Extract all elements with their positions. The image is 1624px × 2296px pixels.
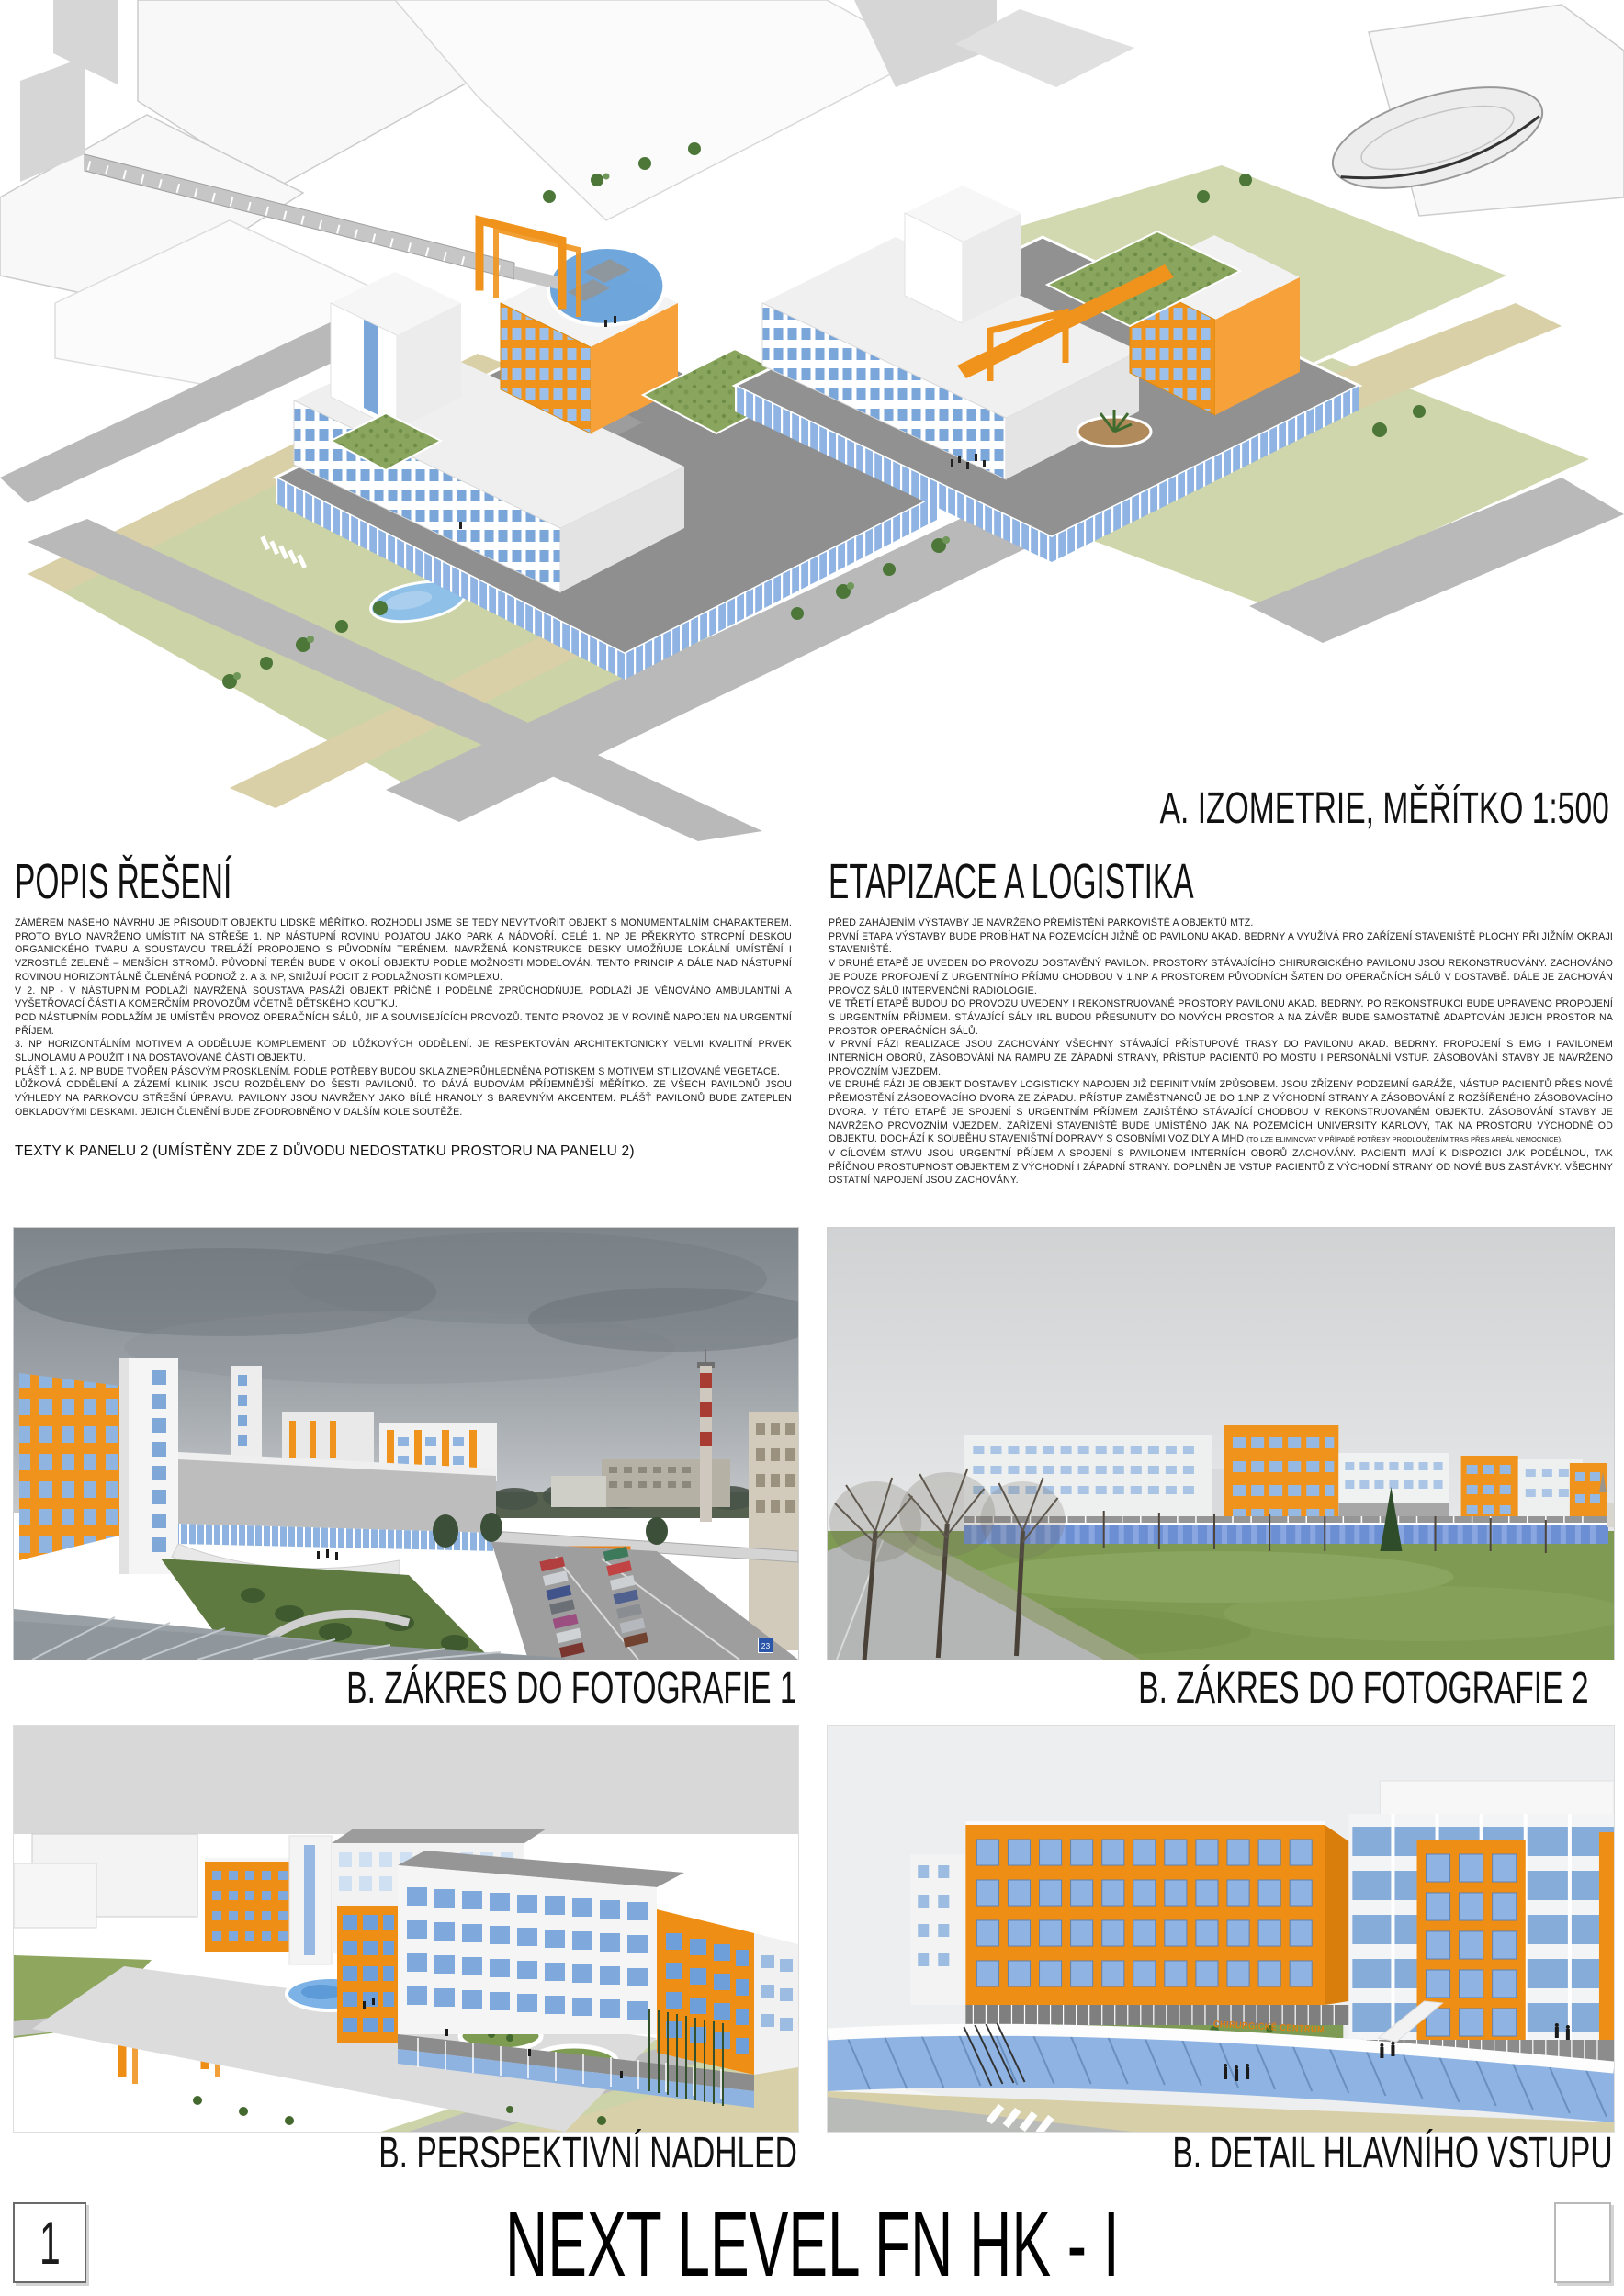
paragraph: POD NÁSTUPNÍM PODLAŽÍM JE UMÍSTĚN PROVOZ… xyxy=(15,1011,792,1038)
etapizace-heading-row: ETAPIZACE A LOGISTIKA xyxy=(829,856,1613,907)
paragraph: V CÍLOVÉM STAVU JSOU URGENTNÍ PŘÍJEM A S… xyxy=(829,1147,1613,1187)
popis-body: ZÁMĚREM NAŠEHO NÁVRHU JE PŘISOUDIT OBJEK… xyxy=(15,917,792,1120)
popis-column: POPIS ŘEŠENÍ ZÁMĚREM NAŠEHO NÁVRHU JE PŘ… xyxy=(15,856,792,1160)
paragraph: 3. NP HORIZONTÁLNÍM MOTIVEM A ODDĚLUJE K… xyxy=(15,1038,792,1064)
etapizace-heading: ETAPIZACE A LOGISTIKA xyxy=(829,856,1194,907)
photo-zakres-1: 23 xyxy=(13,1227,799,1660)
paragraph: VE TŘETÍ ETAPĚ BUDOU DO PROVOZU UVEDENY … xyxy=(829,997,1613,1038)
paragraph: PŘED ZAHÁJENÍM VÝSTAVBY JE NAVRŽENO PŘEM… xyxy=(829,917,1613,930)
photo1-caption-row: B. ZÁKRES DO FOTOGRAFIE 1 xyxy=(13,1666,797,1714)
render-overview-caption-row: B. PERSPEKTIVNÍ NADHLED xyxy=(13,2131,797,2178)
paragraph-footnote: (TO LZE ELIMINOVAT V PŘÍPADĚ POTŘEBY PRO… xyxy=(1246,1135,1562,1143)
paragraph: LŮŽKOVÁ ODDĚLENÍ A ZÁZEMÍ KLINIK JSOU RO… xyxy=(15,1078,792,1119)
isometric-rendering: A. IZOMETRIE, MĚŘÍTKO 1:500 xyxy=(0,0,1624,841)
render-entrance-caption: B. DETAIL HLAVNÍHO VSTUPU xyxy=(1173,2131,1613,2177)
photo2-caption: B. ZÁKRES DO FOTOGRAFIE 2 xyxy=(1139,1666,1589,1712)
paragraph: ZÁMĚREM NAŠEHO NÁVRHU JE PŘISOUDIT OBJEK… xyxy=(15,917,792,985)
render-overview-caption: B. PERSPEKTIVNÍ NADHLED xyxy=(378,2131,797,2177)
parking-sign: 23 xyxy=(758,1638,773,1653)
paragraph: V PRVNÍ FÁZI REALIZACE JSOU ZACHOVÁNY VŠ… xyxy=(829,1038,1613,1078)
isometric-caption-row: A. IZOMETRIE, MĚŘÍTKO 1:500 xyxy=(966,786,1609,832)
render-overview xyxy=(13,1725,799,2133)
paragraph: VE DRUHÉ FÁZI JE OBJEKT DOSTAVBY LOGISTI… xyxy=(829,1078,1613,1147)
popis-heading: POPIS ŘEŠENÍ xyxy=(15,856,231,907)
photo2-scene xyxy=(828,1228,1614,1660)
paragraph: PLÁŠŤ 1. A 2. NP BUDE TVOŘEN PÁSOVÝM PRO… xyxy=(15,1065,792,1079)
render-overview-scene xyxy=(14,1726,798,2132)
competition-panel: A. IZOMETRIE, MĚŘÍTKO 1:500 POPIS ŘEŠENÍ… xyxy=(0,0,1624,2296)
photo1-scene xyxy=(14,1228,798,1660)
project-title: NEXT LEVEL FN HK - I xyxy=(505,2200,1120,2289)
isometric-caption: A. IZOMETRIE, MĚŘÍTKO 1:500 xyxy=(1160,786,1609,832)
isometric-scene xyxy=(0,0,1624,841)
empty-footer-box xyxy=(1554,2202,1611,2283)
photo1-caption: B. ZÁKRES DO FOTOGRAFIE 1 xyxy=(347,1666,797,1712)
etapizace-body: PŘED ZAHÁJENÍM VÝSTAVBY JE NAVRŽENO PŘEM… xyxy=(829,917,1613,1187)
paragraph: V DRUHÉ ETAPĚ JE UVEDEN DO PROVOZU DOSTA… xyxy=(829,957,1613,997)
paragraph: PRVNÍ ETAPA VÝSTAVBY BUDE PROBÍHAT NA PO… xyxy=(829,930,1613,957)
photo2-caption-row: B. ZÁKRES DO FOTOGRAFIE 2 xyxy=(827,1666,1589,1714)
panel2-note: TEXTY K PANELU 2 (UMÍSTĚNY ZDE Z DŮVODU … xyxy=(15,1143,792,1160)
popis-heading-row: POPIS ŘEŠENÍ xyxy=(15,856,792,907)
etapizace-column: ETAPIZACE A LOGISTIKA PŘED ZAHÁJENÍM VÝS… xyxy=(829,856,1613,1187)
render-entrance-scene xyxy=(828,1726,1614,2132)
render-entrance: CHIRURGICKÉ CENTRUM xyxy=(827,1725,1615,2133)
render-entrance-caption-row: B. DETAIL HLAVNÍHO VSTUPU xyxy=(827,2131,1613,2178)
photo-zakres-2 xyxy=(827,1227,1615,1660)
project-title-row: NEXT LEVEL FN HK - I xyxy=(0,2200,1624,2289)
paragraph: V 2. NP - V NÁSTUPNÍM PODLAŽÍ NAVRŽENÁ S… xyxy=(15,985,792,1011)
